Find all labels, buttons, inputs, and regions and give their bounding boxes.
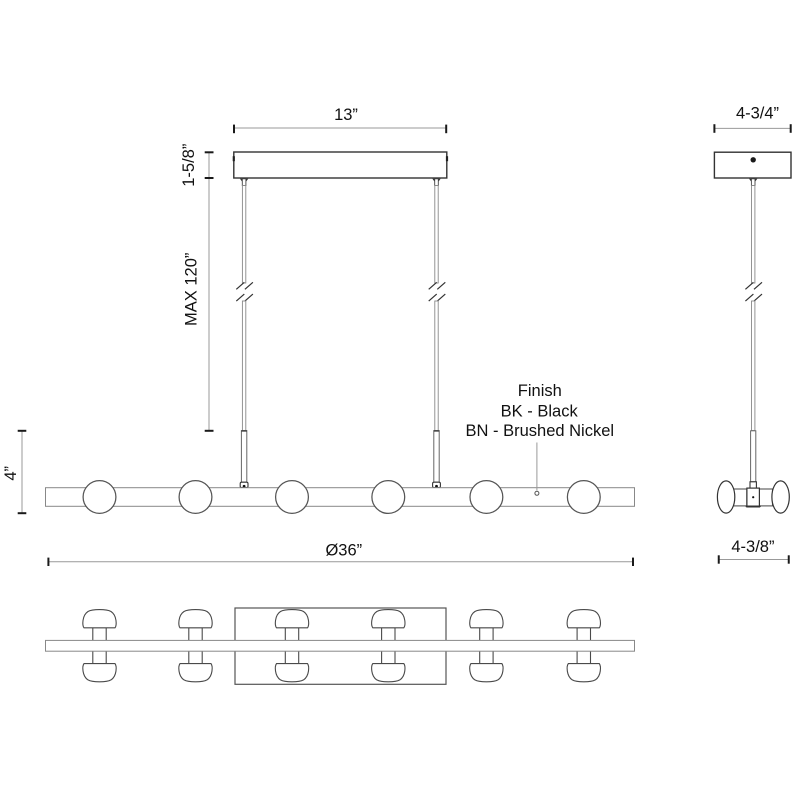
svg-text:BN - Brushed Nickel: BN - Brushed Nickel bbox=[466, 422, 615, 440]
svg-text:13”: 13” bbox=[334, 106, 358, 124]
svg-text:4-3/4”: 4-3/4” bbox=[736, 105, 779, 123]
svg-text:4”: 4” bbox=[2, 466, 20, 481]
svg-text:MAX 120”: MAX 120” bbox=[183, 253, 201, 326]
svg-text:1-5/8”: 1-5/8” bbox=[180, 144, 198, 187]
svg-text:Finish: Finish bbox=[518, 382, 562, 400]
svg-text:4-3/8”: 4-3/8” bbox=[731, 538, 774, 556]
svg-text:BK - Black: BK - Black bbox=[501, 402, 579, 420]
svg-text:Ø36”: Ø36” bbox=[325, 542, 362, 560]
